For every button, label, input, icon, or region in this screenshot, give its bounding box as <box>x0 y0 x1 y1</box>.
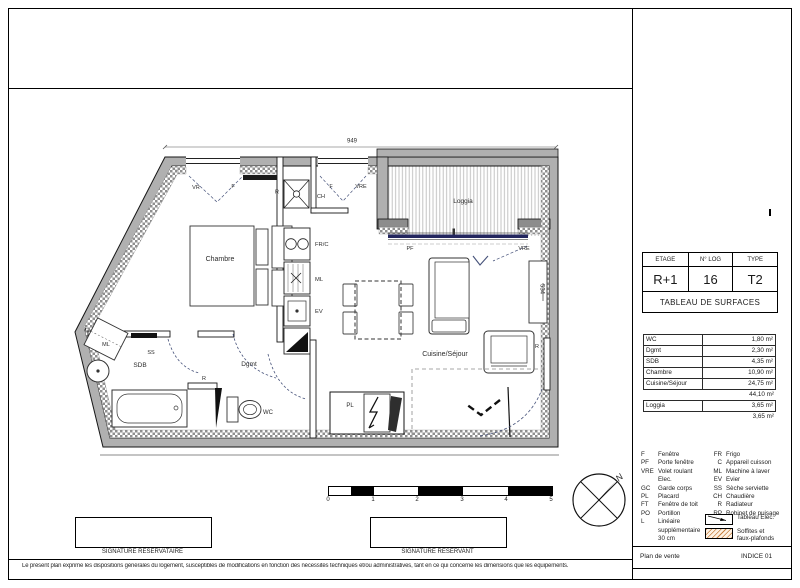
sofa <box>429 258 469 334</box>
header-divider-line <box>8 88 633 89</box>
surface-row-value: 3,65 m² <box>702 401 775 411</box>
legend-item: CHChaudière <box>700 493 793 501</box>
type-value: T2 <box>732 267 777 292</box>
legend-label: Frigo <box>726 451 793 459</box>
kitchen-appliances <box>284 228 310 354</box>
surface-row-label: WC <box>644 335 702 345</box>
surface-row-label: Chambre <box>644 368 702 378</box>
tableau-elec-icon <box>705 514 733 525</box>
dimension-line-top <box>163 145 558 149</box>
legend-abbr: FT <box>641 501 658 509</box>
legend-item: FFenêtre <box>641 451 707 459</box>
log-value: 16 <box>688 267 733 292</box>
label-ch: CH <box>317 194 325 200</box>
label-vre-top: VRE <box>355 184 367 190</box>
surfaces-table-title: TABLEAU DE SURFACES <box>643 292 777 312</box>
radiator-top <box>243 175 277 180</box>
legend-abbr: PO <box>641 510 658 518</box>
legend-abbr: PF <box>641 459 658 467</box>
surface-row-value: 10,90 m² <box>702 368 775 378</box>
legend-abbr: ML <box>700 468 726 476</box>
signature-label-reservataire: SIGNATURE RESERVATAIRE <box>75 549 210 555</box>
table-row: Dgmt 2,30 m² <box>643 345 776 357</box>
scale-tick: 1 <box>368 497 378 503</box>
room-wc: WC <box>263 410 274 416</box>
bed <box>190 226 268 306</box>
legend-item: VREVolet roulant Elec. <box>641 468 707 485</box>
label-pl: PL <box>346 403 354 409</box>
toilet <box>227 397 261 422</box>
label-ml-sdb: ML <box>102 342 110 348</box>
type-header: TYPE <box>732 253 777 267</box>
room-loggia: Loggia <box>453 198 473 205</box>
label-vr: VR <box>192 185 200 191</box>
scale-seg <box>463 487 508 495</box>
legend-abbr: R <box>700 501 726 509</box>
log-header: N° LOG <box>688 253 733 267</box>
unit-info-table: ETAGE N° LOG TYPE R+1 16 T2 TABLEAU DE S… <box>642 252 778 313</box>
legend-item: Tableau Elec. <box>705 514 774 525</box>
table-row: Chambre 10,90 m² <box>643 367 776 379</box>
label-ss: SS <box>147 350 155 356</box>
dim-right-label: 534 <box>539 284 545 295</box>
legend-item: SSSèche serviette <box>700 485 793 493</box>
legend-label: Linéaire supplémentaire 30 cm <box>658 518 707 543</box>
scale-seg <box>508 487 552 495</box>
legend-right-column: FRFrigo CAppareil cuisson MLMachine à la… <box>700 451 793 518</box>
title-block-divider-line <box>632 8 633 579</box>
plan-de-vente-sheet: 949 534 VR F R CH F VRE PF VRE Loggia Ch… <box>0 0 800 588</box>
legend-label-line2: faux-plafonds <box>737 535 774 542</box>
floor-plan: 949 534 VR F R CH F VRE PF VRE Loggia Ch… <box>60 125 580 470</box>
table-row: WC 1,80 m² <box>643 334 776 346</box>
legend-item: FRFrigo <box>700 451 793 459</box>
loggia-swing-check <box>473 256 488 265</box>
legend-abbr: L <box>641 518 658 543</box>
room-chambre: Chambre <box>206 256 235 263</box>
scale-bar <box>328 486 553 496</box>
signature-box-reservant[interactable] <box>370 517 507 548</box>
towel-radiator <box>131 333 157 338</box>
legend-abbr: PL <box>641 493 658 501</box>
legend-label: Radiateur <box>726 501 793 509</box>
surface-row-value: 24,75 m² <box>702 379 775 389</box>
legend-abbr: C <box>700 459 726 467</box>
legend-item: GCGarde corps <box>641 485 707 493</box>
disclaimer-divider <box>8 559 633 560</box>
legend-label: Chaudière <box>726 493 793 501</box>
legend-abbr: EV <box>700 476 726 484</box>
label-r-top: R <box>275 190 279 196</box>
indice-label: INDICE 01 <box>741 553 772 560</box>
label-r-sejour: R <box>535 344 539 350</box>
entry-closet <box>330 392 404 434</box>
symbol-legend: Tableau Elec. Soffites et faux-plafonds <box>705 514 774 545</box>
surface-row-label: Cuisine/Séjour <box>644 379 702 389</box>
surfaces-table: WC 1,80 m² Dgmt 2,30 m² SDB 4,35 m² Cham… <box>643 334 776 422</box>
fold-mark <box>769 209 771 216</box>
legend-label: Soffites et faux-plafonds <box>737 528 774 542</box>
entrance-door <box>466 387 542 437</box>
legend-item: MLMachine à laver <box>700 468 793 476</box>
dim-top-label: 949 <box>347 139 358 145</box>
legend-item: RRadiateur <box>700 501 793 509</box>
scale-tick: 4 <box>501 497 511 503</box>
legend-label: Evier <box>726 476 793 484</box>
label-vre-loggia: VRE <box>518 246 530 252</box>
armchair <box>484 331 534 373</box>
legend-abbr: F <box>641 451 658 459</box>
label-ev: EV <box>315 309 323 315</box>
label-ml-cuisine: ML <box>315 277 324 283</box>
scale-tick: 3 <box>457 497 467 503</box>
legend-label: Tableau Elec. <box>737 514 774 521</box>
legend-label: Appareil cuisson <box>726 459 793 467</box>
signature-label-reservant: SIGNATURE RESERVANT <box>370 549 505 555</box>
soffites-hatch-icon <box>705 528 733 539</box>
soffit-dashed <box>412 369 545 436</box>
signature-box-reservataire[interactable] <box>75 517 212 548</box>
disclaimer-text: Le présent plan exprime les dispositions… <box>22 563 628 569</box>
surface-row-value: 1,80 m² <box>702 335 775 345</box>
etage-value: R+1 <box>643 267 688 292</box>
compass-needle <box>598 482 616 502</box>
bathtub <box>112 390 187 427</box>
room-sejour: Cuisine/Séjour <box>422 351 468 358</box>
footer-divider-bottom <box>632 568 792 569</box>
scale-tick: 2 <box>412 497 422 503</box>
footer-divider-top <box>632 546 792 547</box>
legend-item: LLinéaire supplémentaire 30 cm <box>641 518 707 543</box>
legend-abbr: SS <box>700 485 726 493</box>
surface-row-value: 4,35 m² <box>702 357 775 367</box>
legend-item: PFPorte fenêtre <box>641 459 707 467</box>
surface-row-label: SDB <box>644 357 702 367</box>
scale-seg <box>351 487 374 495</box>
boiler <box>284 180 309 208</box>
surface-row-label: Dgmt <box>644 346 702 356</box>
scale-tick: 5 <box>546 497 556 503</box>
room-sdb: SDB <box>133 362 146 369</box>
legend-abbr: GC <box>641 485 658 493</box>
plan-type-label: Plan de vente <box>640 553 680 560</box>
legend-item: FTFenêtre de toit <box>641 501 707 509</box>
scale-seg <box>374 487 418 495</box>
scale-tick: 0 <box>323 497 333 503</box>
label-r-hall: R <box>202 376 206 382</box>
legend-label-line1: Soffites et <box>737 528 764 535</box>
table-row: SDB 4,35 m² <box>643 356 776 368</box>
label-f1: F <box>231 184 235 190</box>
table-row: Loggia 3,65 m² <box>643 400 776 412</box>
legend-left-column: FFenêtre PFPorte fenêtre VREVolet roulan… <box>641 451 707 543</box>
legend-item: Soffites et faux-plafonds <box>705 528 774 542</box>
legend-abbr: CH <box>700 493 726 501</box>
entrance-arrow <box>466 400 500 415</box>
scale-seg <box>329 487 351 495</box>
legend-item: EVEvier <box>700 476 793 484</box>
legend-abbr: FR <box>700 451 726 459</box>
legend-label: Sèche serviette <box>726 485 793 493</box>
etage-header: ETAGE <box>643 253 688 267</box>
dining-set <box>343 281 413 339</box>
label-pf: PF <box>406 246 414 252</box>
surface-row-label: Loggia <box>644 401 702 411</box>
legend-item: CAppareil cuisson <box>700 459 793 467</box>
legend-abbr: VRE <box>641 468 658 485</box>
scale-seg <box>418 487 463 495</box>
compass-north-label: N <box>614 471 626 483</box>
wc-door-leaf <box>215 388 222 428</box>
compass: N <box>570 468 632 534</box>
legend-item: POPortillon <box>641 510 707 518</box>
radiator-sejour <box>544 338 550 390</box>
label-f2: F <box>329 184 333 190</box>
label-frc: FR/C <box>315 242 329 248</box>
room-dgmt: Dgmt <box>241 361 257 368</box>
legend-item: PLPlacard <box>641 493 707 501</box>
surface-row-value: 2,30 m² <box>702 346 775 356</box>
loggia-total: 3,65 m² <box>643 412 776 422</box>
legend-label: Machine à laver <box>726 468 793 476</box>
table-row: Cuisine/Séjour 24,75 m² <box>643 378 776 390</box>
